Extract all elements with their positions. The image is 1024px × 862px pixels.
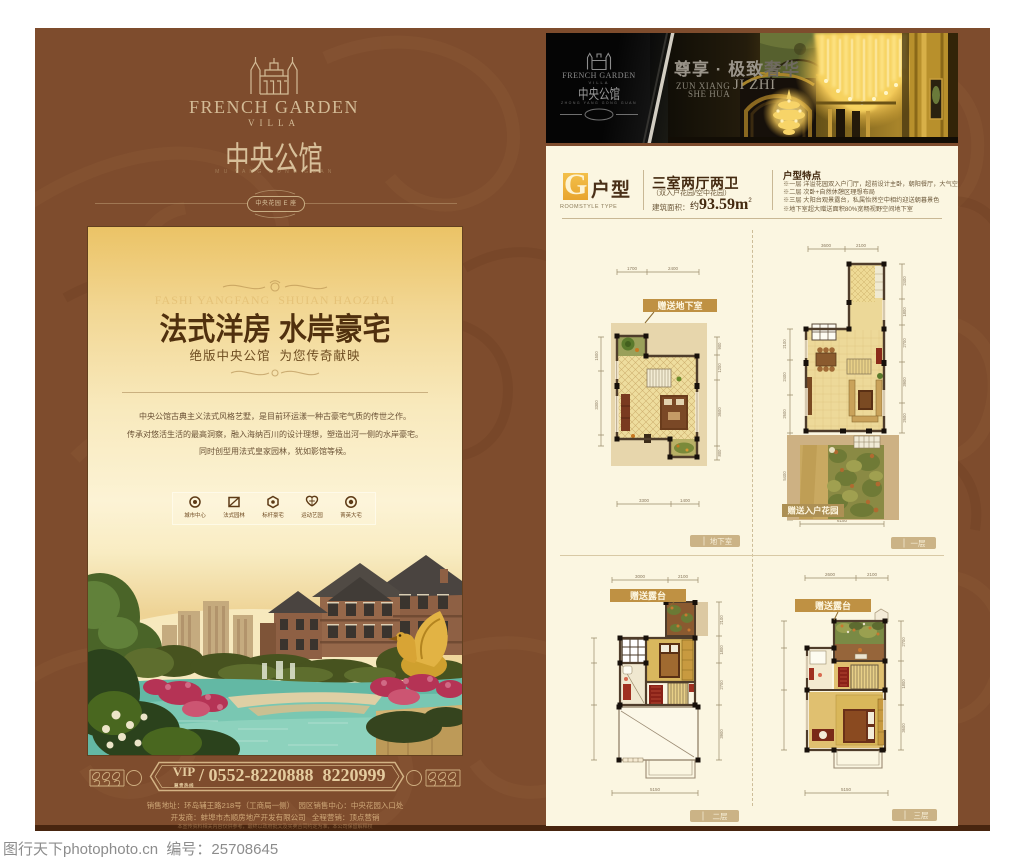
svg-text:3600: 3600: [780, 717, 781, 727]
svg-text:1800: 1800: [590, 647, 591, 657]
svg-text:3300: 3300: [639, 498, 650, 503]
svg-text:3900: 3900: [590, 729, 591, 739]
svg-text:赠送露台: 赠送露台: [815, 600, 851, 611]
svg-text:1700: 1700: [627, 266, 638, 271]
svg-text:3900: 3900: [719, 729, 724, 739]
svg-text:2400: 2400: [902, 276, 907, 286]
svg-text:二层: 二层: [713, 812, 728, 821]
svg-text:1100: 1100: [780, 630, 781, 640]
svg-text:3300: 3300: [594, 400, 599, 410]
svg-text:法式园林: 法式园林: [223, 511, 245, 519]
svg-text:地下室: 地下室: [710, 536, 733, 546]
svg-text:5150: 5150: [841, 787, 852, 792]
svg-text:2600: 2600: [825, 572, 836, 577]
svg-text:900: 900: [717, 342, 722, 350]
svg-text:2100: 2100: [678, 574, 689, 579]
svg-text:赠送入户花园: 赠送入户花园: [787, 506, 838, 516]
svg-text:菁英大宅: 菁英大宅: [340, 511, 362, 519]
svg-text:1200: 1200: [717, 363, 722, 373]
svg-text:3600: 3600: [717, 407, 722, 417]
svg-text:2700: 2700: [902, 338, 907, 348]
svg-text:3900: 3900: [902, 377, 907, 387]
svg-text:标杆豪宅: 标杆豪宅: [262, 511, 284, 519]
svg-text:3600: 3600: [901, 723, 906, 733]
svg-text:运动艺园: 运动艺园: [301, 511, 323, 519]
svg-text:2400: 2400: [782, 372, 787, 382]
svg-text:2600: 2600: [782, 409, 787, 419]
svg-text:2700: 2700: [719, 680, 724, 690]
svg-text:赠送地下室: 赠送地下室: [657, 300, 702, 311]
svg-text:2700: 2700: [901, 637, 906, 647]
svg-text:5400: 5400: [782, 471, 787, 481]
svg-text:3600: 3600: [821, 243, 832, 248]
svg-text:2100: 2100: [782, 339, 787, 349]
svg-text:1800: 1800: [901, 679, 906, 689]
svg-text:2600: 2600: [780, 665, 781, 675]
svg-text:赠送露台: 赠送露台: [630, 590, 666, 601]
svg-text:800: 800: [717, 449, 722, 457]
svg-text:2400: 2400: [668, 266, 679, 271]
svg-text:城市中心: 城市中心: [184, 511, 206, 519]
svg-text:1500: 1500: [594, 351, 599, 361]
svg-text:三层: 三层: [914, 811, 929, 820]
svg-text:2100: 2100: [719, 615, 724, 625]
svg-text:1800: 1800: [719, 645, 724, 655]
svg-text:2700: 2700: [590, 681, 591, 691]
svg-text:2100: 2100: [867, 572, 878, 577]
svg-text:5150: 5150: [650, 787, 661, 792]
svg-text:一层: 一层: [911, 539, 926, 548]
svg-text:3000: 3000: [635, 574, 646, 579]
svg-text:1800: 1800: [902, 307, 907, 317]
svg-text:1400: 1400: [680, 498, 691, 503]
svg-text:2600: 2600: [902, 413, 907, 423]
svg-text:2100: 2100: [856, 243, 867, 248]
